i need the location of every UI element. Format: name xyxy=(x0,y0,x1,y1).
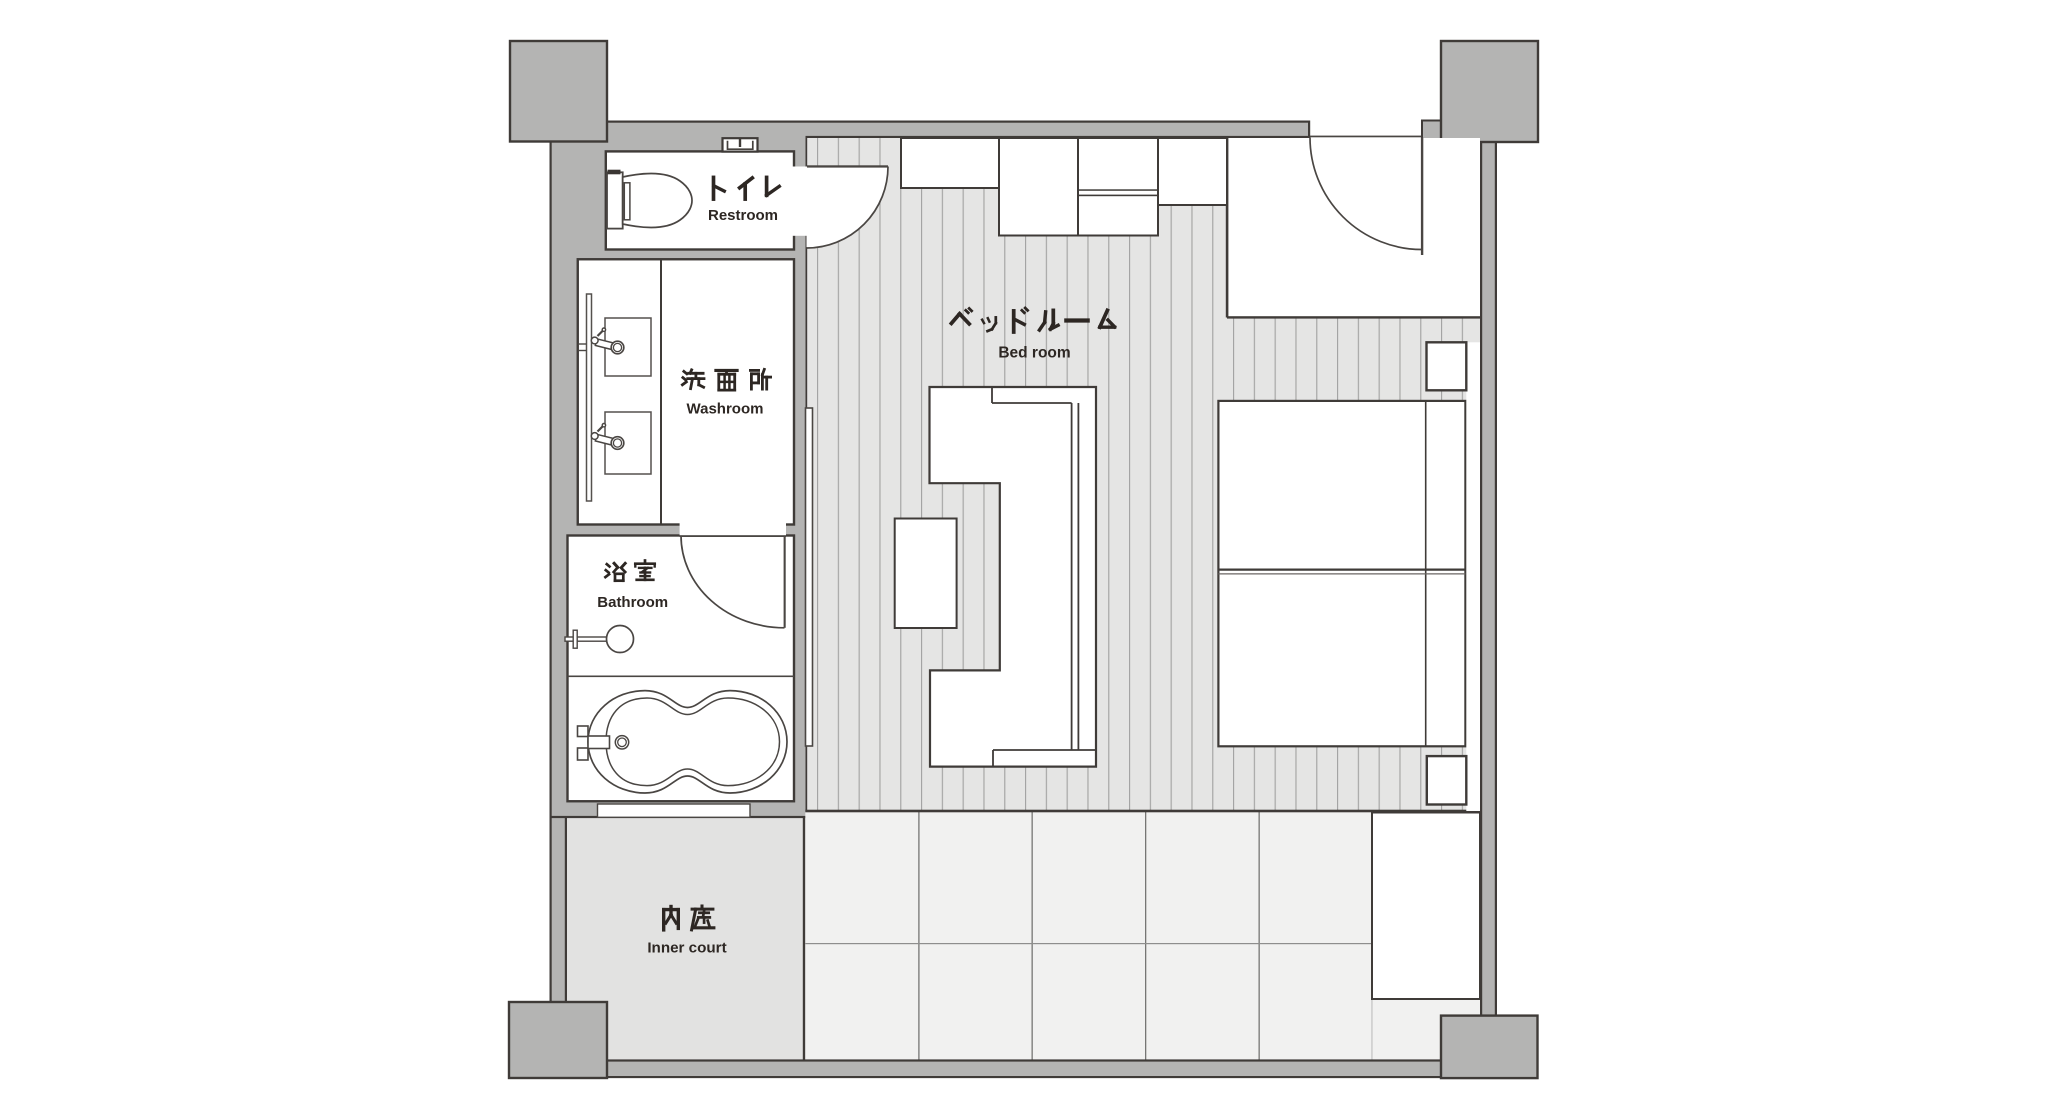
svg-text:Restroom: Restroom xyxy=(708,207,778,224)
svg-text:Washroom: Washroom xyxy=(687,400,764,417)
svg-text:Bed room: Bed room xyxy=(998,345,1070,362)
svg-text:Bathroom: Bathroom xyxy=(597,594,668,611)
svg-text:Inner court: Inner court xyxy=(647,939,726,956)
